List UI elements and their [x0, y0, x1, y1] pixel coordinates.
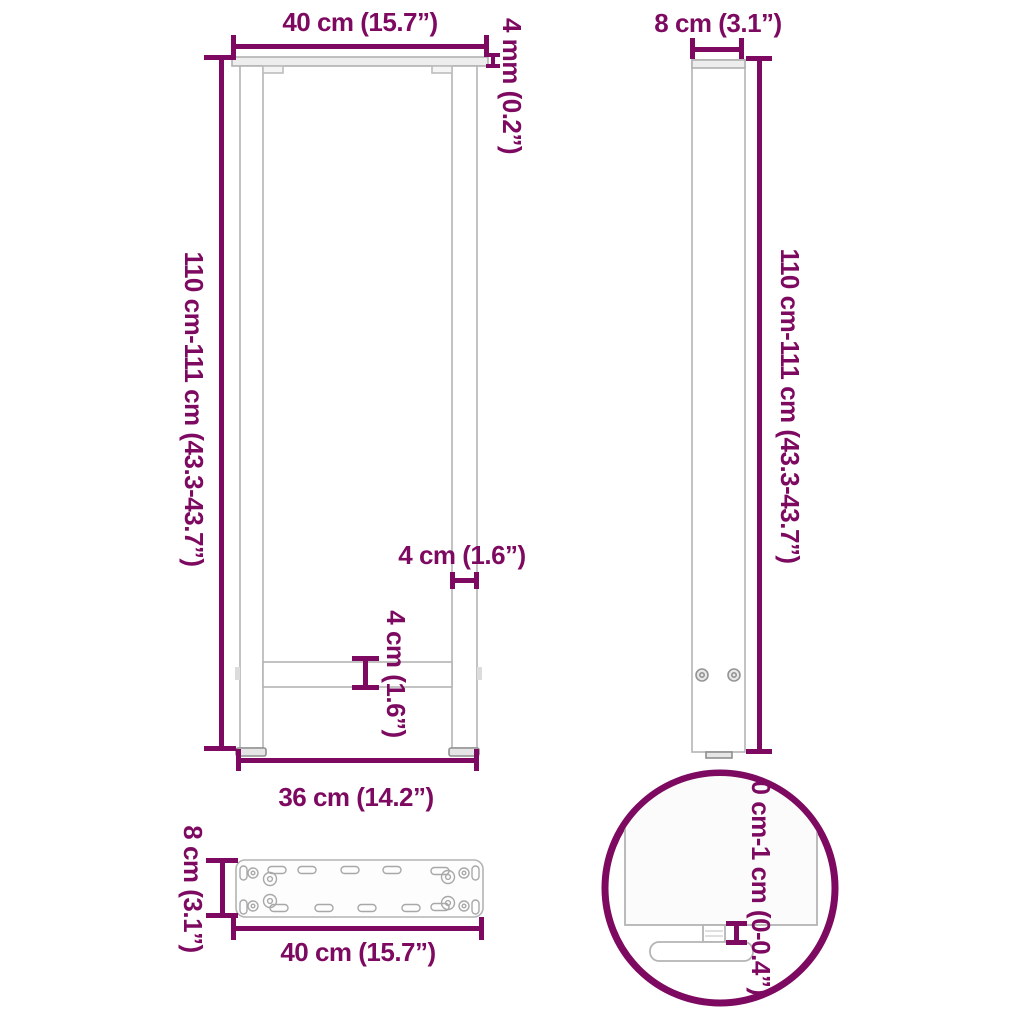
- dim-label-plate-width: 40 cm (15.7”): [280, 939, 435, 965]
- front-right-leg: [452, 66, 477, 748]
- dim-label-foot-adjustment: 0 cm-1 cm (0-0.4”): [748, 781, 774, 996]
- front-crossbar: [263, 662, 452, 687]
- dim-label-front-height: 110 cm-111 cm (43.3-43.7”): [181, 251, 207, 566]
- front-top-plate: [232, 57, 488, 66]
- front-left-leg: [240, 66, 263, 748]
- front-right-weld-mark: [477, 667, 482, 680]
- dim-label-crossbar-height: 4 cm (1.6”): [383, 610, 409, 737]
- dim-side-depth: [690, 38, 744, 59]
- dim-front-width-bottom: [236, 749, 479, 771]
- dim-label-side-depth: 8 cm (3.1”): [654, 10, 781, 36]
- detail-foot-stem: [703, 925, 725, 942]
- side-screw-left: [696, 669, 708, 681]
- dim-label-leg-width: 4 cm (1.6”): [398, 542, 525, 568]
- detail-leg-bottom: [625, 760, 817, 925]
- front-view: [232, 57, 488, 756]
- side-leg: [692, 60, 745, 752]
- dim-side-height: [746, 56, 772, 754]
- front-left-bracket: [263, 66, 283, 73]
- front-right-bracket: [432, 66, 452, 73]
- plate-view: [236, 860, 483, 917]
- dimension-diagram: 40 cm (15.7”) 4 mm (0.2”) 110 cm-111 cm …: [0, 0, 1024, 1024]
- front-left-weld-mark: [235, 667, 240, 680]
- dim-label-plate-thickness: 4 mm (0.2”): [499, 18, 525, 154]
- dim-front-width-top: [231, 35, 489, 57]
- dim-label-plate-depth: 8 cm (3.1”): [180, 825, 206, 952]
- dim-label-front-width-top: 40 cm (15.7”): [282, 9, 437, 35]
- dim-plate-depth: [206, 858, 238, 918]
- detail-view: [605, 760, 835, 1003]
- side-screw-right: [728, 669, 740, 681]
- side-top-plate-edge: [692, 60, 745, 68]
- dim-label-front-width-bottom: 36 cm (14.2”): [278, 784, 433, 810]
- side-view: [692, 60, 745, 758]
- dim-label-side-height: 110 cm-111 cm (43.3-43.7”): [777, 248, 803, 563]
- side-foot: [706, 752, 732, 758]
